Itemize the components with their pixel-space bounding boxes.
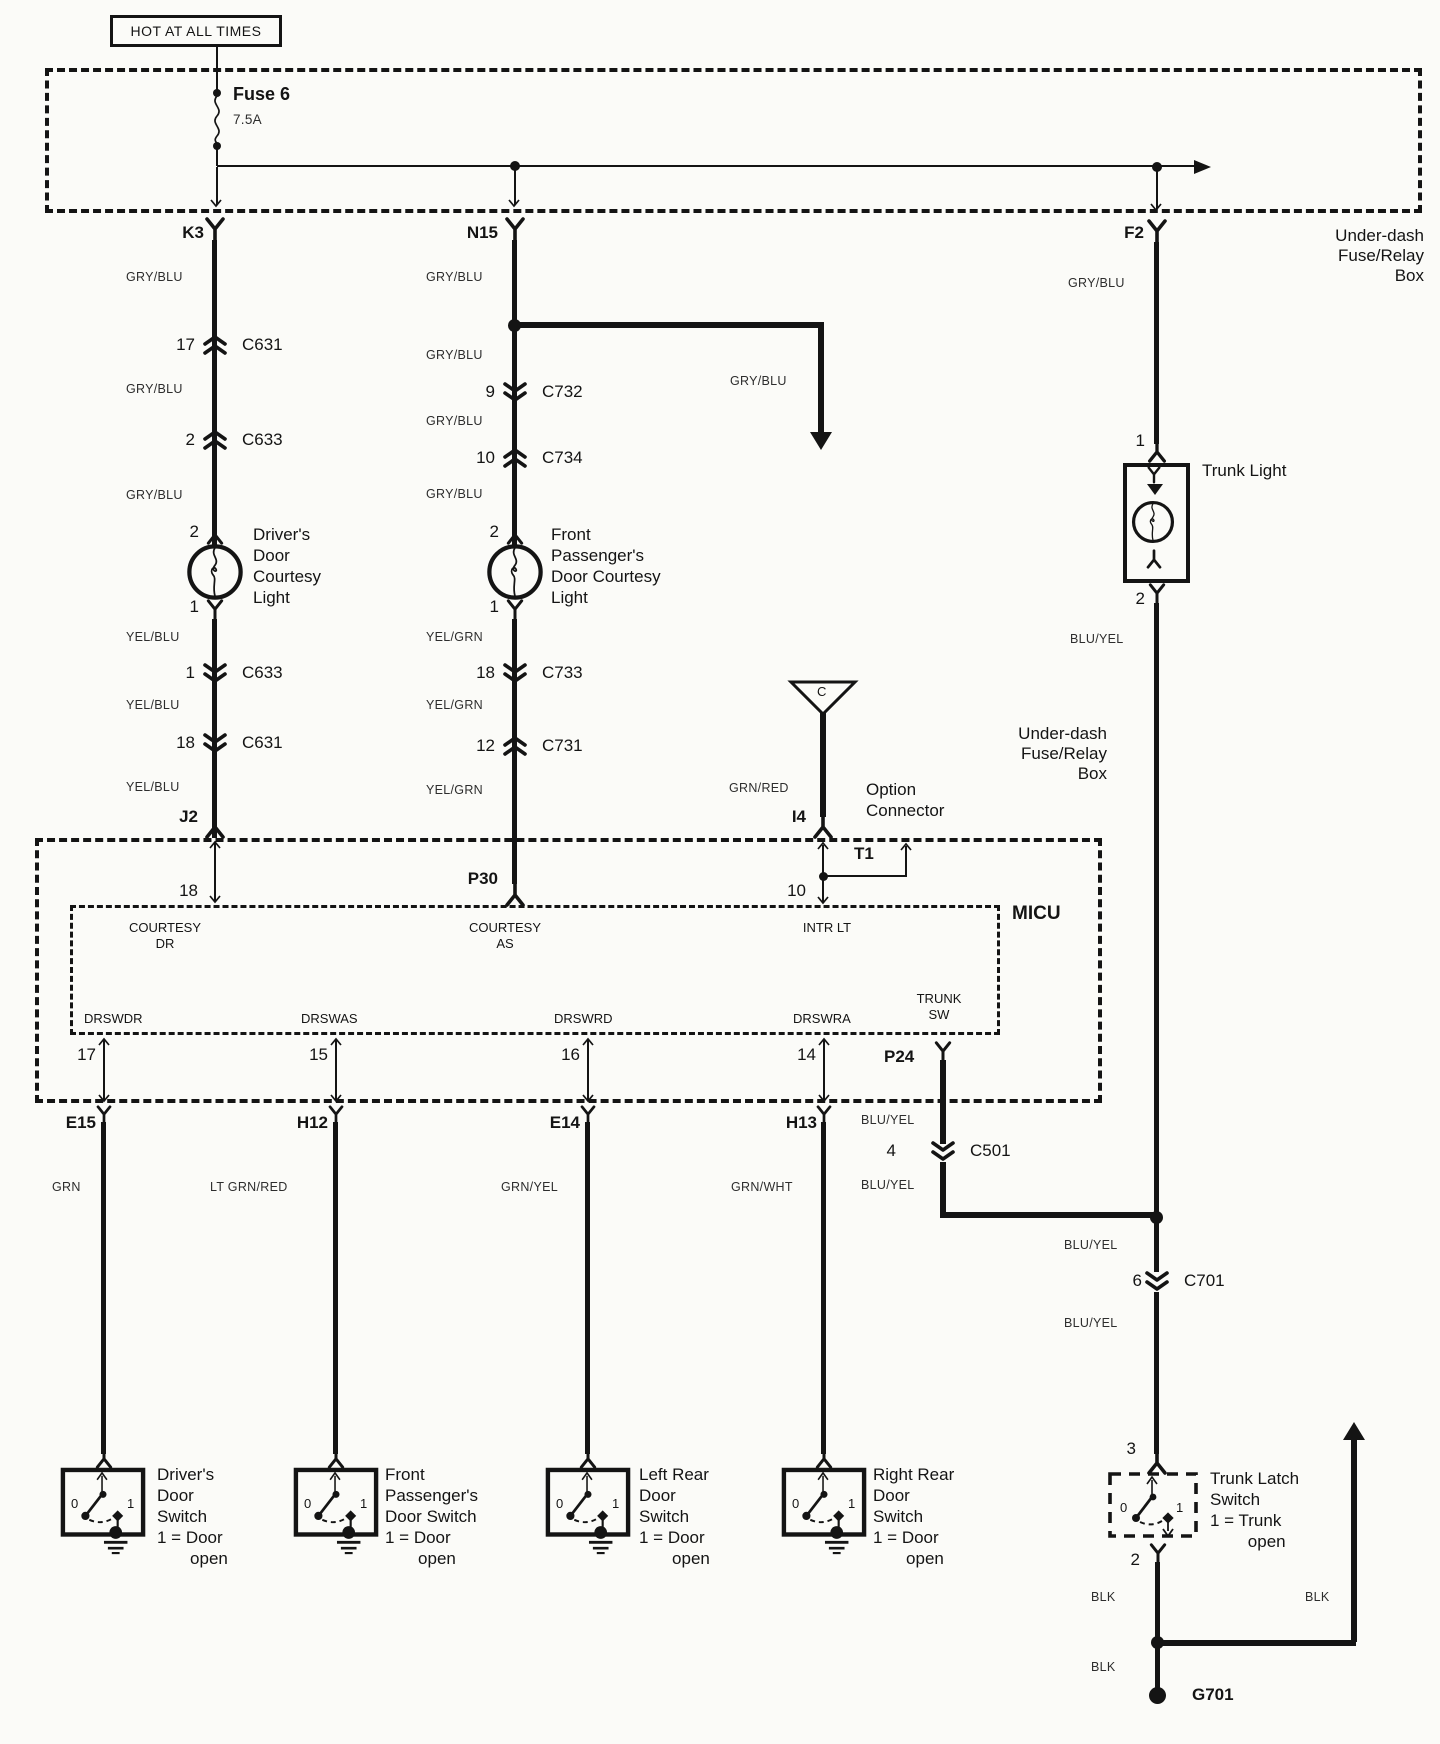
- connector-pin: 18: [139, 732, 195, 753]
- arrow-line-15: [335, 1040, 337, 1100]
- wire-p24-upper: [940, 1060, 946, 1144]
- connector-name: C731: [542, 735, 583, 756]
- wire-latch-down: [1155, 1562, 1160, 1640]
- connector-name: C633: [242, 429, 283, 450]
- connector-pin: 1: [139, 662, 195, 683]
- trunk-latch-pin-3: 3: [1098, 1438, 1136, 1459]
- pin-f2: F2: [1108, 222, 1144, 243]
- micu-drswrd: DRSWRD: [554, 1011, 613, 1027]
- switch-position-1: 1: [360, 1496, 367, 1512]
- wire-color: GRY/BLU: [426, 487, 483, 501]
- half-connector: [204, 524, 226, 544]
- left-rear-door-switch-label: Left Rear Door Switch 1 = Door open: [639, 1464, 710, 1569]
- pin-n15: N15: [450, 222, 498, 243]
- half-connector: [504, 600, 526, 620]
- latch-position-0: 0: [1120, 1500, 1127, 1516]
- pin-h13: H13: [769, 1112, 817, 1133]
- half-connector: [1146, 584, 1168, 604]
- connector-name: C732: [542, 381, 583, 402]
- wire-color: BLU/YEL: [861, 1113, 915, 1127]
- pin-p24: P24: [884, 1046, 914, 1067]
- arrow-down-f2: [1150, 203, 1162, 211]
- micu-pin-15: 15: [290, 1044, 328, 1065]
- connector-c501-down: [930, 1140, 956, 1162]
- arrow-head-down: [817, 896, 829, 904]
- arrow-head-down: [98, 1094, 110, 1102]
- courtesy-light-bulb-driver: [186, 543, 244, 601]
- micu-drswas: DRSWAS: [301, 1011, 358, 1027]
- option-connector-c: C: [817, 684, 826, 700]
- wire-color: GRY/BLU: [426, 348, 483, 362]
- pin-e14: E14: [532, 1112, 580, 1133]
- right-rear-door-switch-label: Right Rear Door Switch 1 = Door open: [873, 1464, 954, 1569]
- pin-i4: I4: [766, 806, 806, 827]
- arrow-head-down: [330, 1094, 342, 1102]
- wire-color: YEL/GRN: [426, 698, 483, 712]
- connector-name: C631: [242, 334, 283, 355]
- driver-courtesy-light-label: Driver's Door Courtesy Light: [253, 524, 321, 608]
- wire-color: GRN: [52, 1180, 81, 1194]
- wire-color: YEL/BLU: [126, 780, 180, 794]
- wire-color: BLU/YEL: [861, 1178, 915, 1192]
- branch-arrow-down: [810, 432, 832, 450]
- wire-color: GRY/BLU: [426, 270, 483, 284]
- right-rear-door-switch: [780, 1466, 868, 1558]
- half-connector-f2: [1146, 220, 1168, 244]
- connector-pin: 12: [439, 735, 495, 756]
- micu-pin-16: 16: [542, 1044, 580, 1065]
- connector-pin: 9: [439, 381, 495, 402]
- connector-pin: 2: [139, 429, 195, 450]
- driver-door-switch: [59, 1466, 147, 1558]
- connector-c731-up: [502, 735, 528, 757]
- connector-pin: 6: [1110, 1270, 1142, 1291]
- front-passenger-door-switch-label: Front Passenger's Door Switch 1 = Door o…: [385, 1464, 478, 1569]
- socket-fork-top: [1143, 467, 1165, 483]
- half-connector: [577, 1448, 599, 1468]
- wire-h13: [821, 1122, 826, 1454]
- half-connector: [504, 524, 526, 544]
- connector-name: C701: [1184, 1270, 1225, 1291]
- trunk-light-bulb: [1131, 500, 1175, 544]
- connector-name: C501: [970, 1140, 1011, 1161]
- wire-to-j2: [212, 619, 217, 838]
- wire-color: GRY/BLU: [426, 414, 483, 428]
- wire-color: YEL/GRN: [426, 783, 483, 797]
- wire-e15: [101, 1122, 106, 1454]
- latch-position-1: 1: [1176, 1500, 1183, 1516]
- connector-c733-down: [502, 662, 528, 684]
- wire-bus-horizontal: [217, 165, 1157, 167]
- wire-color: YEL/GRN: [426, 630, 483, 644]
- half-connector-j2: [204, 814, 226, 838]
- connector-pin: 18: [439, 662, 495, 683]
- wire-blk-riser: [1351, 1440, 1357, 1642]
- connector-name: C631: [242, 732, 283, 753]
- micu-drswdr: DRSWDR: [84, 1011, 143, 1027]
- micu-drswra: DRSWRA: [793, 1011, 851, 1027]
- arrow-head-up: [98, 1038, 110, 1046]
- half-connector: [93, 1448, 115, 1468]
- socket-fork-bottom: [1143, 550, 1165, 568]
- wire-bus-extension: [1157, 165, 1195, 167]
- courtesy-light-bulb-passenger: [486, 543, 544, 601]
- half-connector: [1147, 1544, 1169, 1564]
- light-pin-top: 2: [177, 521, 199, 542]
- connector-name: C734: [542, 447, 583, 468]
- arrow-head-up: [817, 842, 829, 850]
- trunk-light-pin-1: 1: [1113, 430, 1145, 451]
- half-connector-i4: [812, 814, 834, 838]
- wire-trunk-lower: [1154, 1292, 1159, 1454]
- wire-color: GRY/BLU: [126, 488, 183, 502]
- passenger-courtesy-light-label: Front Passenger's Door Courtesy Light: [551, 524, 661, 608]
- wiring-diagram-page: HOT AT ALL TIMES Fuse 6 7.5A K3 N15 F2 U…: [0, 0, 1440, 1744]
- riser-arrow-up: [1343, 1422, 1365, 1440]
- wire-branch-horizontal: [515, 322, 821, 328]
- fuse-relay-box-label: Under-dash Fuse/Relay Box: [1284, 226, 1424, 286]
- arrow-head-up: [209, 841, 221, 849]
- wire-color-blk: BLK: [1305, 1590, 1330, 1604]
- wire-color: YEL/BLU: [126, 698, 180, 712]
- arrow-head-down: [209, 895, 221, 903]
- micu-label: MICU: [1012, 903, 1061, 924]
- connector-name: C733: [542, 662, 583, 683]
- connector-c631-down: [202, 732, 228, 754]
- light-pin-top: 2: [477, 521, 499, 542]
- micu-pin-18: 18: [158, 880, 198, 901]
- half-connector-p24: [932, 1042, 954, 1062]
- arrow-line-14: [823, 1040, 825, 1100]
- left-rear-door-switch: [544, 1466, 632, 1558]
- wire-color: GRN/YEL: [501, 1180, 558, 1194]
- half-connector: [204, 600, 226, 620]
- wire-color: LT GRN/RED: [210, 1180, 288, 1194]
- trunk-light-pin-2: 2: [1113, 588, 1145, 609]
- wire-p24-horizontal: [940, 1212, 1156, 1218]
- wire-color: GRY/BLU: [126, 382, 183, 396]
- switch-position-1: 1: [848, 1496, 855, 1512]
- wire-f2-down: [1154, 242, 1159, 444]
- option-connector-label: Option Connector: [866, 779, 944, 821]
- connector-pin: 10: [439, 447, 495, 468]
- half-connector-k3: [204, 218, 226, 242]
- arrow-head-up: [582, 1038, 594, 1046]
- wire-trunk-light-down: [1154, 603, 1159, 1217]
- wire-fuse-top: [216, 47, 218, 91]
- light-pin-bottom: 1: [477, 596, 499, 617]
- half-connector-n15: [504, 218, 526, 242]
- arrow-line-16: [587, 1040, 589, 1100]
- arrow-head-down: [582, 1094, 594, 1102]
- connector-c633-down: [202, 662, 228, 684]
- micu-courtesy-dr: COURTESY DR: [110, 920, 220, 952]
- micu-pin-10: 10: [766, 880, 806, 901]
- wire-color: BLU/YEL: [1070, 632, 1124, 646]
- arrow-line-j2-18: [214, 843, 216, 902]
- half-connector: [1146, 440, 1168, 462]
- wire-blk-horizontal: [1158, 1640, 1356, 1646]
- wire-to-g701: [1155, 1646, 1160, 1692]
- driver-door-switch-label: Driver's Door Switch 1 = Door open: [157, 1464, 228, 1569]
- wire-color: GRN/RED: [729, 781, 789, 795]
- connector-c732-down: [502, 381, 528, 403]
- wire-k3-down: [212, 240, 217, 546]
- hot-at-all-times-box: HOT AT ALL TIMES: [110, 15, 282, 47]
- micu-pin-14: 14: [778, 1044, 816, 1065]
- switch-position-1: 1: [612, 1496, 619, 1512]
- arrow-head-up: [818, 1038, 830, 1046]
- ground-g701-dot: [1149, 1687, 1166, 1704]
- wire-color-branch: GRY/BLU: [730, 374, 787, 388]
- arrow-line-17: [103, 1040, 105, 1100]
- arrow-head-up: [900, 843, 912, 851]
- fuse-relay-box-label-2: Under-dash Fuse/Relay Box: [967, 724, 1107, 784]
- wire-color: YEL/BLU: [126, 630, 180, 644]
- trunk-light-label: Trunk Light: [1202, 460, 1286, 481]
- wire-fuse-bottom: [216, 149, 218, 166]
- trunk-latch-pin-2: 2: [1104, 1549, 1140, 1570]
- half-connector: [325, 1448, 347, 1468]
- wire-p24-lower: [940, 1162, 946, 1218]
- micu-courtesy-as: COURTESY AS: [450, 920, 560, 952]
- pin-h12: H12: [280, 1112, 328, 1133]
- t1-branch-horizontal: [823, 875, 907, 877]
- wire-trunk-mid: [1154, 1219, 1159, 1272]
- wire-color: GRY/BLU: [126, 270, 183, 284]
- arrow-down-k3: [210, 199, 222, 207]
- wire-option-down: [820, 713, 826, 817]
- arrow-head-down: [818, 1094, 830, 1102]
- pin-k3: K3: [168, 222, 204, 243]
- front-passenger-door-switch: [292, 1466, 380, 1558]
- wire-color: BLU/YEL: [1064, 1238, 1118, 1252]
- pin-j2: J2: [158, 806, 198, 827]
- wire-color: GRN/WHT: [731, 1180, 793, 1194]
- pin-e15: E15: [48, 1112, 96, 1133]
- connector-name: C633: [242, 662, 283, 683]
- trunk-latch-label: Trunk Latch Switch 1 = Trunk open: [1210, 1468, 1299, 1552]
- connector-pin: 4: [864, 1140, 896, 1161]
- micu-intr-lt: INTR LT: [782, 920, 872, 936]
- arrow-down-n15: [508, 199, 520, 207]
- wire-color-blk: BLK: [1091, 1590, 1116, 1604]
- fuse-rating-label: 7.5A: [233, 112, 262, 127]
- micu-pin-17: 17: [58, 1044, 96, 1065]
- wire-color: GRY/BLU: [1068, 276, 1125, 290]
- connector-c734-up: [502, 447, 528, 469]
- t1-label: T1: [854, 843, 874, 864]
- wire-e14: [585, 1122, 590, 1454]
- wire-color: BLU/YEL: [1064, 1316, 1118, 1330]
- connector-pin: 17: [139, 334, 195, 355]
- switch-position-0: 0: [556, 1496, 563, 1512]
- wire-color-blk: BLK: [1091, 1660, 1116, 1674]
- ground-g701-label: G701: [1192, 1684, 1234, 1705]
- wire-branch-down: [818, 322, 824, 434]
- fuse-element: [207, 95, 227, 145]
- fuse-name-label: Fuse 6: [233, 84, 290, 105]
- switch-position-0: 0: [71, 1496, 78, 1512]
- half-connector: [813, 1448, 835, 1468]
- switch-position-1: 1: [127, 1496, 134, 1512]
- switch-position-0: 0: [304, 1496, 311, 1512]
- socket-contact: [1145, 483, 1165, 497]
- connector-c633-up: [202, 429, 228, 451]
- bus-arrow-right: [1194, 160, 1211, 174]
- light-pin-bottom: 1: [177, 596, 199, 617]
- connector-c631-up: [202, 334, 228, 356]
- micu-trunk-sw: TRUNK SW: [908, 991, 970, 1023]
- wire-h12: [333, 1122, 338, 1454]
- switch-position-0: 0: [792, 1496, 799, 1512]
- arrow-head-up: [330, 1038, 342, 1046]
- connector-c701-down: [1144, 1270, 1170, 1292]
